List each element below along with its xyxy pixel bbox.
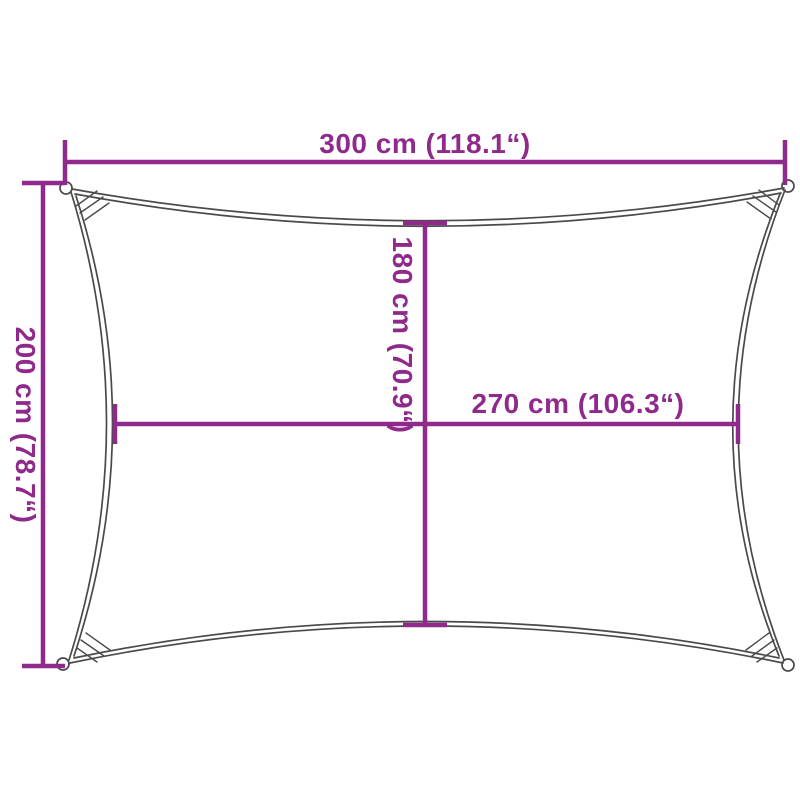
sail-edge-bottom-outer [70, 626, 783, 663]
corner-ring-bottom-right [782, 659, 794, 671]
diagram-svg: 300 cm (118.1“) 200 cm (78.7“) 180 cm (7… [0, 0, 800, 800]
sail-edge-right-outer [738, 190, 785, 660]
sail-edge-left-outer [69, 192, 107, 660]
label-width-300: 300 cm (118.1“) [319, 128, 530, 159]
label-height-200: 200 cm (78.7“) [10, 327, 41, 524]
label-inner-width-270: 270 cm (106.3“) [472, 388, 685, 419]
label-inner-height-180: 180 cm (70.9“) [387, 237, 418, 434]
sail-edge-top-outer [72, 188, 784, 221]
sail-dimension-diagram: 300 cm (118.1“) 200 cm (78.7“) 180 cm (7… [0, 0, 800, 800]
